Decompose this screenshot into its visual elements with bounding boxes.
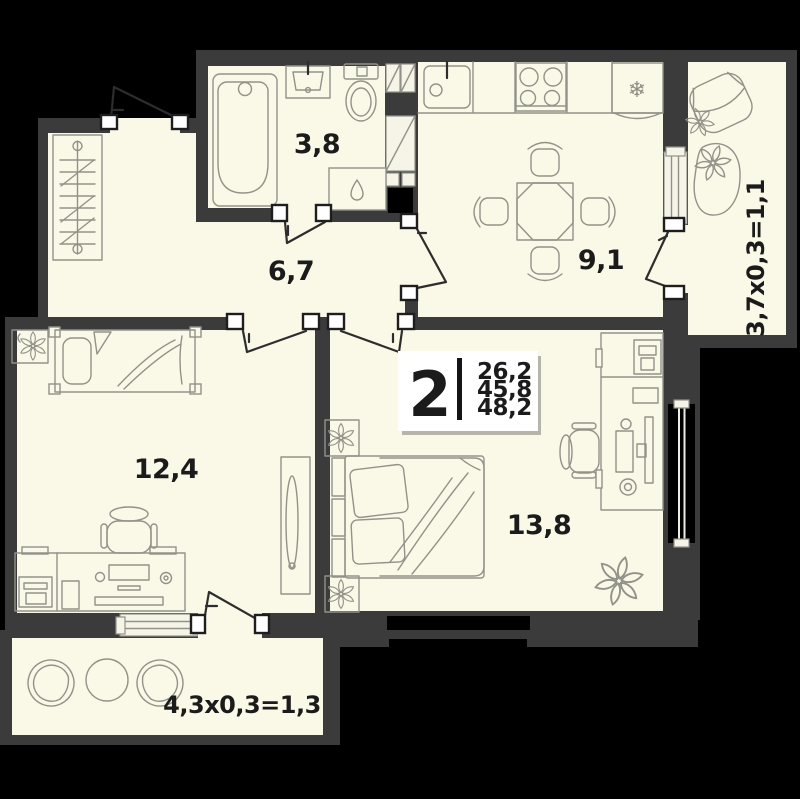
room-label-kitchen: 9,1 [578,245,624,276]
wall-segment [663,545,698,615]
wall-segment [663,50,797,62]
floor-plan: ❄ [0,0,800,799]
desk-tab [596,470,602,488]
washing-machine [329,168,386,210]
shaft-box [386,173,399,186]
window-bedroom-left [116,614,202,636]
wall-segment [786,50,797,348]
balcony-right-floor [688,62,786,335]
wall-segment [323,630,340,742]
area-total: 48,2 [477,395,532,421]
card-divider [457,358,462,420]
room-label-bedroom-left: 12,4 [134,454,199,485]
room-label-bedroom-right: 13,8 [507,510,572,541]
ventilation-shafts [386,64,415,213]
desk-tab [596,349,602,367]
wall-segment [38,118,48,330]
wall-segment [663,62,688,153]
unit-info-card: 2 26,2 45,8 48,2 [398,351,541,435]
shaft-box [402,173,415,186]
wall-segment [0,735,340,745]
room-label-hallway: 6,7 [268,256,314,287]
wall-segment [196,50,208,212]
duct-opening [388,188,413,213]
balcony-right-label: 3,7x0,3=1,1 [742,179,770,337]
window-kitchen-balcony [664,147,687,228]
wall-segment [315,330,330,613]
balcony-bottom-floor [12,638,323,735]
fridge-snowflake-icon: ❄ [628,78,646,103]
rooms-count: 2 [408,358,451,431]
room-label-bathroom: 3,8 [294,129,340,160]
window-bedroom-right-side [668,400,695,547]
balcony-bottom-label: 4,3x0,3=1,3 [163,691,321,719]
floor-plan-canvas: ❄ [0,0,800,799]
wall-segment [0,630,12,745]
kitchen-floor [418,62,663,317]
